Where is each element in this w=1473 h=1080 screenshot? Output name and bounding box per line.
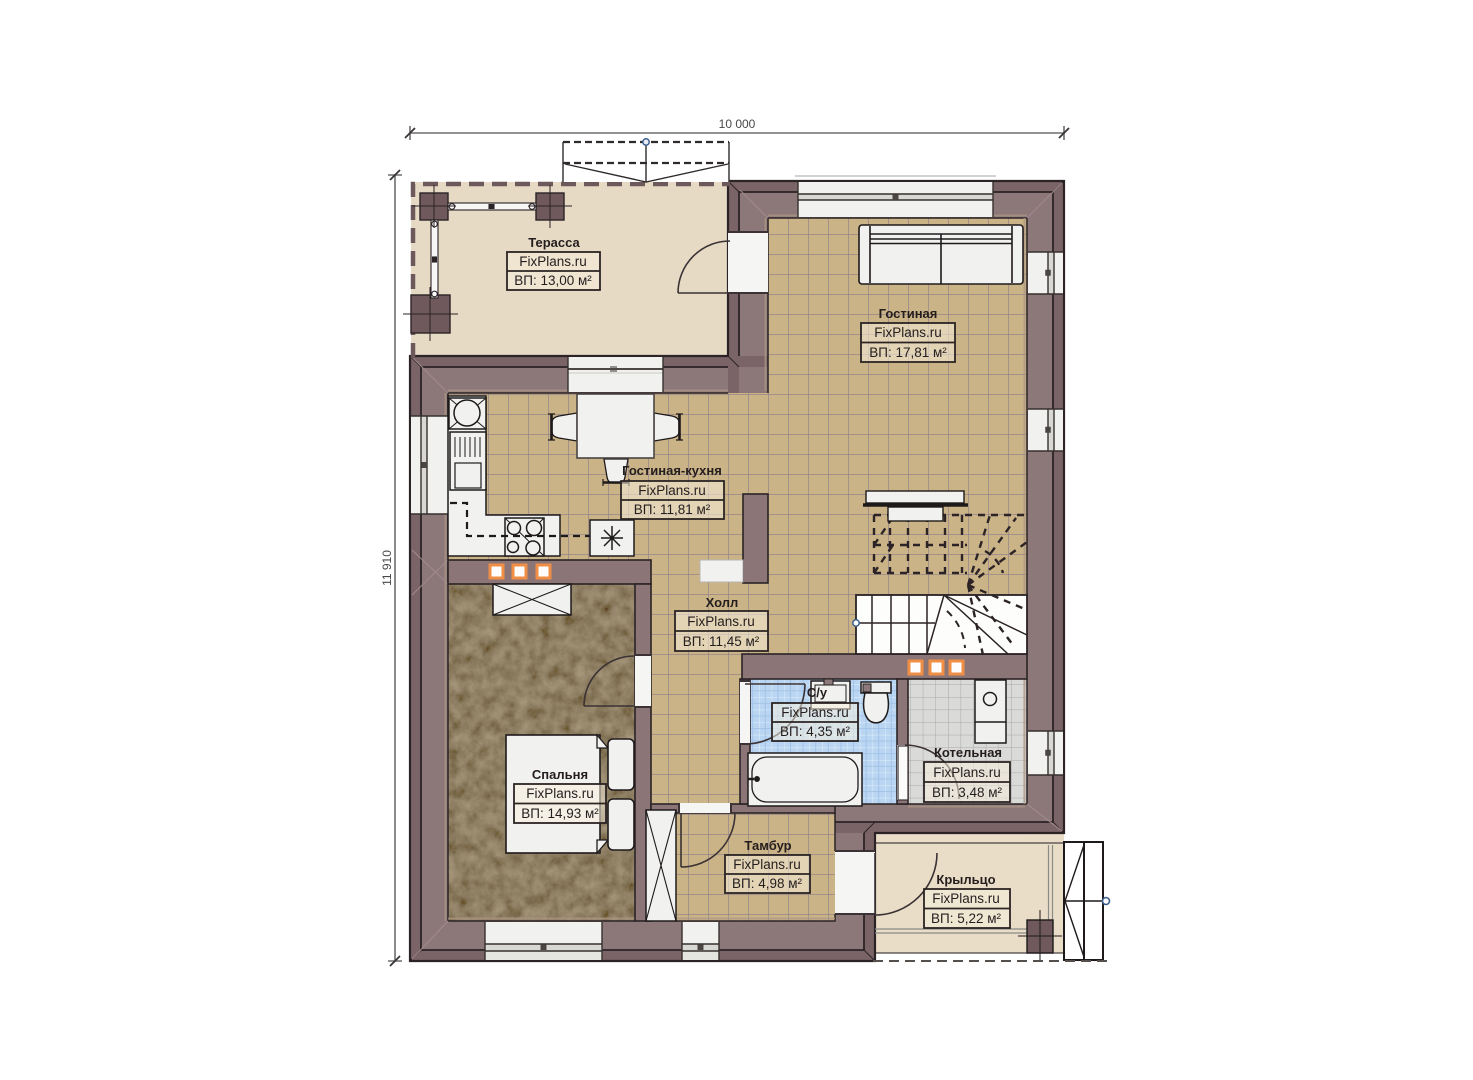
svg-text:Гостиная-кухня: Гостиная-кухня: [622, 463, 722, 478]
svg-text:ВП: 11,81 м²: ВП: 11,81 м²: [634, 502, 711, 517]
svg-text:FixPlans.ru: FixPlans.ru: [874, 325, 942, 340]
svg-text:Тамбур: Тамбур: [744, 838, 791, 853]
svg-text:Спальня: Спальня: [532, 767, 588, 782]
svg-text:ВП: 3,48 м²: ВП: 3,48 м²: [932, 785, 1003, 800]
svg-text:FixPlans.ru: FixPlans.ru: [932, 891, 1000, 906]
svg-text:ВП: 5,22 м²: ВП: 5,22 м²: [931, 911, 1002, 926]
svg-text:FixPlans.ru: FixPlans.ru: [526, 786, 594, 801]
svg-text:Терасса: Терасса: [528, 235, 580, 250]
svg-text:ВП: 13,00 м²: ВП: 13,00 м²: [514, 273, 592, 288]
svg-text:FixPlans.ru: FixPlans.ru: [638, 483, 706, 498]
svg-text:Котельная: Котельная: [934, 745, 1002, 760]
svg-text:ВП: 4,98 м²: ВП: 4,98 м²: [732, 876, 803, 891]
svg-text:10 000: 10 000: [719, 117, 756, 131]
svg-text:ВП: 14,93 м²: ВП: 14,93 м²: [521, 806, 599, 821]
svg-text:С/у: С/у: [807, 685, 828, 700]
svg-text:Крыльцо: Крыльцо: [936, 872, 995, 887]
svg-text:FixPlans.ru: FixPlans.ru: [687, 614, 755, 629]
svg-text:Холл: Холл: [706, 595, 739, 610]
svg-text:FixPlans.ru: FixPlans.ru: [933, 765, 1001, 780]
svg-text:FixPlans.ru: FixPlans.ru: [519, 254, 587, 269]
svg-text:ВП: 4,35 м²: ВП: 4,35 м²: [780, 724, 851, 739]
svg-text:FixPlans.ru: FixPlans.ru: [733, 857, 801, 872]
svg-text:FixPlans.ru: FixPlans.ru: [781, 705, 849, 720]
svg-text:ВП: 11,45 м²: ВП: 11,45 м²: [683, 634, 760, 649]
svg-text:ВП: 17,81 м²: ВП: 17,81 м²: [869, 345, 947, 360]
svg-text:Гостиная: Гостиная: [879, 306, 938, 321]
svg-text:11 910: 11 910: [380, 550, 394, 586]
